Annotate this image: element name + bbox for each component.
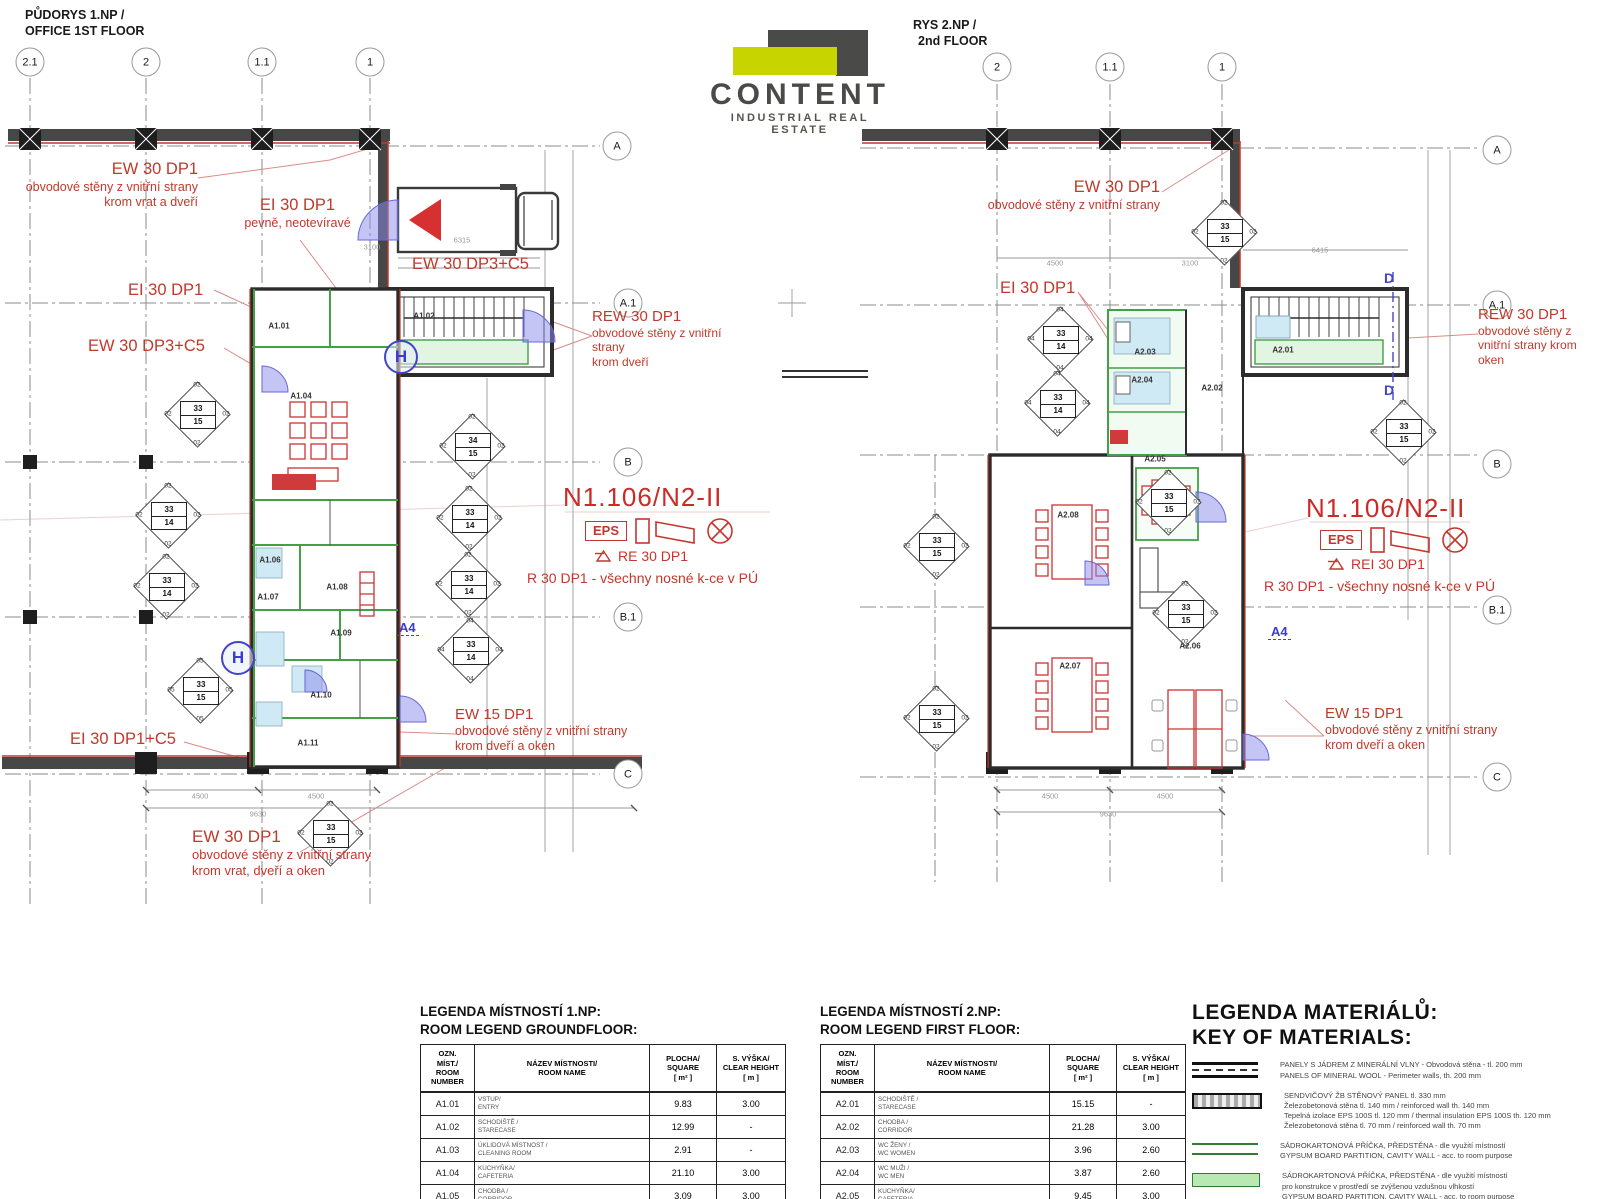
col-header-area: PLOCHA/ SQUARE [ m² ] — [1050, 1045, 1117, 1093]
room-area: 21.10 — [650, 1161, 717, 1184]
room-name: CHODBA /CORRIDOR — [475, 1184, 650, 1199]
diamond-corner-label: 04 — [495, 647, 502, 654]
fire-zone-label-left: N1.106/N2-II — [563, 482, 722, 513]
room-name: WC MUŽI /WC MEN — [875, 1161, 1050, 1184]
room-area: 2.91 — [650, 1138, 717, 1161]
room-table-2np: OZN. MÍST./ ROOM NUMBER NÁZEV MÍSTNOSTI/… — [820, 1044, 1186, 1199]
diamond-values: 3314 — [1043, 326, 1079, 354]
triangle-icon — [595, 549, 612, 563]
annotation-r30-left: R 30 DP1 - všechny nosné k-ce v PÚ — [527, 570, 758, 587]
diamond-corner-label: 02 — [497, 443, 504, 450]
table-row: A2.05KUCHYŇKA/CAFETERIA9.453.00 — [821, 1184, 1186, 1199]
diamond-corner-label: 05 — [196, 658, 203, 665]
truck — [398, 184, 558, 256]
diamond-corner-label: 02 — [133, 583, 140, 590]
diamond-values: 3315 — [1207, 219, 1243, 247]
room-height: - — [717, 1115, 786, 1138]
table-row: A2.01SCHODIŠTĚ /STARECASE15.15- — [821, 1092, 1186, 1115]
diamond-corner-label: 02 — [435, 581, 442, 588]
room-height: - — [1117, 1092, 1186, 1115]
grid-bubble-1: 1 — [1208, 53, 1237, 82]
diamond-corner-label: 02 — [1152, 610, 1159, 617]
grid-bubble-C: C — [614, 760, 643, 789]
table-row: A2.02CHODBA /CORRIDOR21.283.00 — [821, 1115, 1186, 1138]
diamond-corner-label: 02 — [1220, 200, 1227, 207]
grid-bubble-A: A — [603, 132, 632, 161]
diamond-corner-label: 02 — [465, 544, 472, 551]
diamond-values: 3315 — [1386, 419, 1422, 447]
diamond-corner-label: 02 — [164, 411, 171, 418]
room-number: A2.05 — [821, 1184, 875, 1199]
diamond-corner-label: 04 — [1027, 336, 1034, 343]
eps-symbol-left: EPS — [585, 516, 738, 546]
dimension-label: 9630 — [1100, 810, 1117, 819]
room-label-A1.08: A1.08 — [326, 583, 347, 592]
diamond-corner-label: 02 — [1193, 499, 1200, 506]
room-number: A1.03 — [421, 1138, 475, 1161]
diamond-corner-label: 05 — [225, 687, 232, 694]
diamond-corner-label: 02 — [903, 543, 910, 550]
room-area: 15.15 — [1050, 1092, 1117, 1115]
diamond-corner-label: 02 — [1220, 258, 1227, 265]
dimension-label: 4500 — [1157, 792, 1174, 801]
material-description: SENDVIČOVÝ ŽB STĚNOVÝ PANEL tl. 330 mmŽe… — [1284, 1091, 1551, 1132]
building-edge — [782, 371, 868, 377]
col-header-name: NÁZEV MÍSTNOSTI/ ROOM NAME — [875, 1045, 1050, 1093]
room-number: A2.01 — [821, 1092, 875, 1115]
room-name: ÚKLIDOVÁ MÍSTNOST /CLEANING ROOM — [475, 1138, 650, 1161]
diamond-corner-label: 02 — [1399, 400, 1406, 407]
logo-subtitle: INDUSTRIAL REAL ESTATE — [700, 112, 900, 136]
table-row: A1.02SCHODIŠTĚ /STARECASE12.99- — [421, 1115, 786, 1138]
room-label-A2.05: A2.05 — [1144, 455, 1165, 464]
plan1-title: PŮDORYS 1.NP /OFFICE 1ST FLOOR — [25, 8, 144, 39]
annotation-ew15-left: EW 15 DP1 obvodové stěny z vnitřní stran… — [455, 706, 627, 754]
diamond-corner-label: 05 — [167, 687, 174, 694]
col-header-number: OZN. MÍST./ ROOM NUMBER — [821, 1045, 875, 1093]
diamond-corner-label: 02 — [1399, 458, 1406, 465]
logo-name: CONTENT — [700, 78, 900, 112]
room-area: 21.28 — [1050, 1115, 1117, 1138]
room-area: 3.09 — [650, 1184, 717, 1199]
annotation-ew30-bottom: EW 30 DP1 obvodové stěny z vnitřní stran… — [192, 827, 371, 879]
room-height: 2.60 — [1117, 1161, 1186, 1184]
room-area: 9.45 — [1050, 1184, 1117, 1199]
logo-mark — [700, 28, 900, 78]
diamond-corner-label: 02 — [1210, 610, 1217, 617]
diamond-values: 3314 — [1040, 390, 1076, 418]
room-height: 3.00 — [1117, 1115, 1186, 1138]
diamond-corner-label: 02 — [162, 554, 169, 561]
grid-bubble-2.1: 2.1 — [16, 48, 45, 77]
section-marker-a4-left: A4 — [396, 620, 419, 636]
annotation-r30-right: R 30 DP1 - všechny nosné k-ce v PÚ — [1264, 578, 1495, 595]
room-label-A2.07: A2.07 — [1059, 662, 1080, 671]
grid-bubble-B.1: B.1 — [1483, 596, 1512, 625]
annotation-rei30: REI 30 DP1 — [1328, 556, 1425, 572]
diamond-values: 3314 — [452, 505, 488, 533]
room-name: SCHODIŠTĚ /STARECASE — [875, 1092, 1050, 1115]
annotation-ew30dp3: EW 30 DP3+C5 — [88, 337, 205, 357]
drawing-sheet: PŮDORYS 1.NP /OFFICE 1ST FLOOR RYS 2.NP … — [0, 0, 1599, 1199]
room-label-A1.11: A1.11 — [298, 739, 319, 748]
room-name: WC ŽENY /WC WOMEN — [875, 1138, 1050, 1161]
col-header-name: NÁZEV MÍSTNOSTI/ ROOM NAME — [475, 1045, 650, 1093]
grid-bubble-B.1: B.1 — [614, 603, 643, 632]
section-marker-d-bottom: D — [1384, 382, 1394, 398]
table-row: A1.05CHODBA /CORRIDOR3.093.00 — [421, 1184, 786, 1199]
diamond-corner-label: 02 — [961, 715, 968, 722]
diamond-corner-label: 04 — [1053, 371, 1060, 378]
grid-bubble-2: 2 — [132, 48, 161, 77]
diamond-corner-label: 02 — [1135, 499, 1142, 506]
room-name: KUCHYŇKA/CAFETERIA — [875, 1184, 1050, 1199]
material-item: SENDVIČOVÝ ŽB STĚNOVÝ PANEL tl. 330 mmŽe… — [1192, 1091, 1596, 1132]
table-row: A1.03ÚKLIDOVÁ MÍSTNOST /CLEANING ROOM2.9… — [421, 1138, 786, 1161]
grid-bubble-B: B — [1483, 450, 1512, 479]
diamond-corner-label: 02 — [1164, 528, 1171, 535]
room-label-A2.02: A2.02 — [1201, 384, 1222, 393]
annotation-ew30dp3-truck: EW 30 DP3+C5 — [412, 255, 529, 275]
room-label-A1.01: A1.01 — [268, 322, 289, 331]
diamond-values: 3314 — [453, 637, 489, 665]
diamond-corner-label: 04 — [466, 676, 473, 683]
room-legend-1np: LEGENDA MÍSTNOSTÍ 1.NP:ROOM LEGEND GROUN… — [420, 1003, 786, 1199]
room-height: - — [717, 1138, 786, 1161]
diamond-values: 3315 — [180, 401, 216, 429]
grid-bubble-1.1: 1.1 — [248, 48, 277, 77]
diamond-corner-label: 02 — [1181, 639, 1188, 646]
diamond-values: 3314 — [451, 571, 487, 599]
room-name: SCHODIŠTĚ /STARECASE — [475, 1115, 650, 1138]
room-label-A1.07: A1.07 — [257, 593, 278, 602]
hydrant-symbol: H — [384, 340, 418, 374]
materials-items: PANELY S JÁDREM Z MINERÁLNÍ VLNY - Obvod… — [1192, 1060, 1596, 1199]
eps-box: EPS — [585, 521, 627, 541]
room-number: A2.02 — [821, 1115, 875, 1138]
diamond-corner-label: 04 — [1056, 307, 1063, 314]
dimension-label: 6315 — [454, 236, 471, 245]
diamond-corner-label: 02 — [961, 543, 968, 550]
diamond-corner-label: 02 — [164, 483, 171, 490]
dimension-label: 3100 — [1182, 259, 1199, 268]
diamond-corner-label: 02 — [135, 512, 142, 519]
room-area: 12.99 — [650, 1115, 717, 1138]
room-label-A1.09: A1.09 — [330, 629, 351, 638]
diamond-values: 3315 — [1168, 600, 1204, 628]
hydrant-symbol: H — [221, 641, 255, 675]
diamond-corner-label: 02 — [1370, 429, 1377, 436]
room-area: 3.96 — [1050, 1138, 1117, 1161]
diamond-corner-label: 04 — [466, 618, 473, 625]
diamond-corner-label: 02 — [1164, 470, 1171, 477]
room-legend-2np: LEGENDA MÍSTNOSTÍ 2.NP:ROOM LEGEND FIRST… — [820, 1003, 1186, 1199]
table-title: LEGENDA MÍSTNOSTÍ 1.NP:ROOM LEGEND GROUN… — [420, 1003, 786, 1038]
col-header-number: OZN. MÍST./ ROOM NUMBER — [421, 1045, 475, 1093]
fire-zone-label-right: N1.106/N2-II — [1306, 493, 1465, 524]
logo: CONTENT INDUSTRIAL REAL ESTATE — [700, 28, 900, 136]
annotation-ew30-top-right: EW 30 DP1 obvodové stěny z vnitřní stran… — [982, 178, 1160, 213]
diamond-corner-label: 02 — [468, 414, 475, 421]
diamond-corner-label: 02 — [162, 612, 169, 619]
diamond-values: 3315 — [919, 705, 955, 733]
diamond-corner-label: 02 — [464, 610, 471, 617]
office-block-right — [988, 310, 1245, 768]
room-number: A1.05 — [421, 1184, 475, 1199]
material-item: SÁDROKARTONOVÁ PŘÍČKA, PŘEDSTĚNA - dle v… — [1192, 1141, 1596, 1161]
diamond-values: 3314 — [151, 502, 187, 530]
diamond-corner-label: 02 — [1249, 229, 1256, 236]
diamond-corner-label: 02 — [1191, 229, 1198, 236]
diamond-corner-label: 02 — [222, 411, 229, 418]
room-height: 3.00 — [717, 1184, 786, 1199]
room-height: 3.00 — [717, 1092, 786, 1115]
room-number: A1.01 — [421, 1092, 475, 1115]
grid-bubble-C: C — [1483, 763, 1512, 792]
diamond-corner-label: 04 — [437, 647, 444, 654]
eps-box: EPS — [1320, 530, 1362, 550]
table-row: A2.04WC MUŽI /WC MEN3.872.60 — [821, 1161, 1186, 1184]
diamond-values: 3315 — [1151, 489, 1187, 517]
diamond-values: 3415 — [455, 433, 491, 461]
material-description: SÁDROKARTONOVÁ PŘÍČKA, PŘEDSTĚNA - dle v… — [1280, 1141, 1512, 1161]
diamond-values: 3314 — [149, 573, 185, 601]
grid-bubble-A: A — [1483, 136, 1512, 165]
dimension-label: 4500 — [1047, 259, 1064, 268]
material-item: PANELY S JÁDREM Z MINERÁLNÍ VLNY - Obvod… — [1192, 1060, 1596, 1080]
plan2-title: RYS 2.NP /2nd FLOOR — [913, 18, 987, 49]
diamond-corner-label: 02 — [1428, 429, 1435, 436]
material-item: SÁDROKARTONOVÁ PŘÍČKA, PŘEDSTĚNA - dle v… — [1192, 1171, 1596, 1199]
diamond-corner-label: 02 — [193, 382, 200, 389]
diamond-corner-label: 02 — [932, 686, 939, 693]
diamond-corner-label: 02 — [465, 486, 472, 493]
material-symbol-gypsum_humid — [1192, 1173, 1260, 1187]
diamond-corner-label: 02 — [193, 512, 200, 519]
material-description: SÁDROKARTONOVÁ PŘÍČKA, PŘEDSTĚNA - dle v… — [1282, 1171, 1514, 1199]
room-number: A1.04 — [421, 1161, 475, 1184]
diamond-corner-label: 02 — [464, 552, 471, 559]
room-label-A2.04: A2.04 — [1131, 376, 1152, 385]
room-number: A2.03 — [821, 1138, 875, 1161]
stairwell-right — [1243, 272, 1407, 400]
room-name: KUCHYŇKA/CAFETERIA — [475, 1161, 650, 1184]
room-number: A2.04 — [821, 1161, 875, 1184]
material-description: PANELY S JÁDREM Z MINERÁLNÍ VLNY - Obvod… — [1280, 1060, 1522, 1080]
table-row: A1.01VSTUP/ENTRY9.833.00 — [421, 1092, 786, 1115]
room-name: VSTUP/ENTRY — [475, 1092, 650, 1115]
room-label-A1.06: A1.06 — [259, 556, 280, 565]
diamond-corner-label: 02 — [164, 541, 171, 548]
diamond-corner-label: 02 — [932, 514, 939, 521]
room-height: 2.60 — [1117, 1138, 1186, 1161]
material-symbol-gypsum — [1192, 1143, 1258, 1155]
plan-linework — [0, 0, 1599, 970]
fire-cabinet — [272, 474, 316, 490]
diamond-corner-label: 02 — [436, 515, 443, 522]
annotation-ei30c5: EI 30 DP1+C5 — [70, 730, 176, 750]
dimension-label: 4500 — [308, 792, 325, 801]
diamond-corner-label: 04 — [1053, 429, 1060, 436]
room-label-A2.08: A2.08 — [1057, 511, 1078, 520]
annotation-ew15-right: EW 15 DP1 obvodové stěny z vnitřní stran… — [1325, 705, 1497, 753]
dimension-label: 4500 — [192, 792, 209, 801]
annotation-ew30-top-left: EW 30 DP1 obvodové stěny z vnitřní stran… — [8, 160, 198, 210]
room-height: 3.00 — [1117, 1184, 1186, 1199]
table-title: LEGENDA MÍSTNOSTÍ 2.NP:ROOM LEGEND FIRST… — [820, 1003, 1186, 1038]
materials-legend: LEGENDA MATERIÁLŮ:KEY OF MATERIALS: PANE… — [1192, 1000, 1596, 1199]
room-label-A1.02: A1.02 — [413, 312, 434, 321]
dimension-label: 6415 — [1312, 246, 1329, 255]
room-table-1np: OZN. MÍST./ ROOM NUMBER NÁZEV MÍSTNOSTI/… — [420, 1044, 786, 1199]
diamond-corner-label: 02 — [903, 715, 910, 722]
grid-bubble-1: 1 — [356, 48, 385, 77]
grid-bubble-B: B — [614, 448, 643, 477]
room-number: A1.02 — [421, 1115, 475, 1138]
diamond-corner-label: 02 — [932, 744, 939, 751]
dimension-label: 3100 — [364, 243, 381, 252]
diamond-corner-label: 04 — [1085, 336, 1092, 343]
section-marker-a4-right: A4 — [1268, 624, 1291, 640]
room-label-A2.03: A2.03 — [1134, 348, 1155, 357]
material-symbol-sandwich — [1192, 1093, 1262, 1109]
diamond-corner-label: 04 — [1024, 400, 1031, 407]
fire-equipment-icons — [634, 516, 738, 546]
eps-symbol-right: EPS — [1320, 525, 1473, 555]
fire-equipment-icons — [1369, 525, 1473, 555]
diamond-corner-label: 02 — [494, 515, 501, 522]
material-symbol-mineral — [1192, 1062, 1258, 1078]
annotation-re30: RE 30 DP1 — [595, 548, 688, 564]
diamond-corner-label: 02 — [1181, 581, 1188, 588]
room-label-A1.04: A1.04 — [290, 392, 311, 401]
grid-bubble-2: 2 — [983, 53, 1012, 82]
grid-bubble-1.1: 1.1 — [1096, 53, 1125, 82]
room-label-A2.01: A2.01 — [1272, 346, 1293, 355]
triangle-icon — [1328, 557, 1345, 571]
diamond-values: 3315 — [919, 533, 955, 561]
room-height: 3.00 — [717, 1161, 786, 1184]
diamond-corner-label: 02 — [468, 472, 475, 479]
annotation-rew30-left: REW 30 DP1 obvodové stěny z vnitřní stra… — [592, 308, 727, 369]
diamond-corner-label: 02 — [191, 583, 198, 590]
annotation-ei30-left: EI 30 DP1 — [128, 281, 203, 301]
diamond-corner-label: 02 — [193, 440, 200, 447]
diamond-corner-label: 02 — [932, 572, 939, 579]
room-label-A1.10: A1.10 — [310, 691, 331, 700]
col-header-height: S. VÝŠKA/ CLEAR HEIGHT [ m ] — [1117, 1045, 1186, 1093]
dimension-ticks — [143, 787, 1225, 815]
diamond-corner-label: 02 — [326, 801, 333, 808]
materials-title: LEGENDA MATERIÁLŮ:KEY OF MATERIALS: — [1192, 1000, 1596, 1050]
diamond-corner-label: 04 — [1082, 400, 1089, 407]
room-area: 3.87 — [1050, 1161, 1117, 1184]
section-marker-d-top: D — [1384, 270, 1394, 286]
annotation-rew30-right: REW 30 DP1 obvodové stěny z vnitřní stra… — [1478, 306, 1596, 367]
diamond-corner-label: 05 — [196, 716, 203, 723]
col-header-area: PLOCHA/ SQUARE [ m² ] — [650, 1045, 717, 1093]
annotation-ei30-pevne: EI 30 DP1 pevně, neotevíravé — [225, 196, 370, 231]
diamond-corner-label: 02 — [439, 443, 446, 450]
annotation-ei30-right: EI 30 DP1 — [1000, 279, 1075, 299]
col-header-height: S. VÝŠKA/ CLEAR HEIGHT [ m ] — [717, 1045, 786, 1093]
table-row: A2.03WC ŽENY /WC WOMEN3.962.60 — [821, 1138, 1186, 1161]
dimension-label: 4500 — [1042, 792, 1059, 801]
room-name: CHODBA /CORRIDOR — [875, 1115, 1050, 1138]
dimension-label: 9630 — [250, 810, 267, 819]
table-row: A1.04KUCHYŇKA/CAFETERIA21.103.00 — [421, 1161, 786, 1184]
diamond-values: 3315 — [183, 677, 219, 705]
diamond-corner-label: 02 — [493, 581, 500, 588]
room-area: 9.83 — [650, 1092, 717, 1115]
